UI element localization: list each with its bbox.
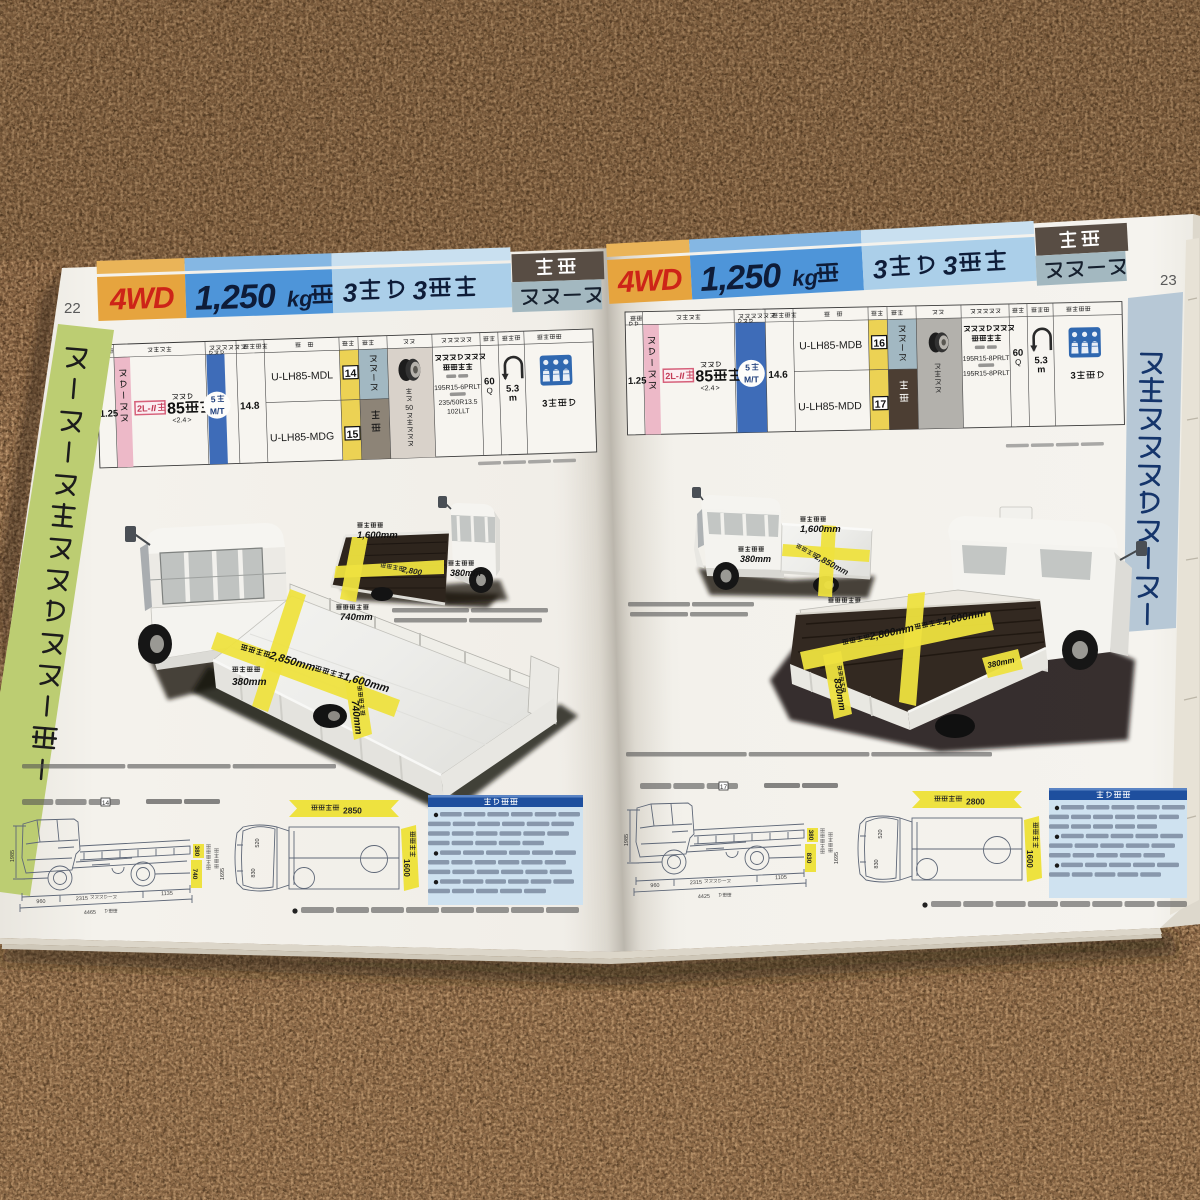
- svg-text:1.25: 1.25: [100, 408, 120, 420]
- svg-text:m: m: [509, 392, 517, 402]
- svg-text:3: 3: [872, 254, 889, 285]
- svg-text:II: II: [151, 403, 157, 413]
- svg-text:1600: 1600: [402, 859, 411, 877]
- svg-text:15: 15: [346, 429, 358, 441]
- svg-text:17: 17: [875, 399, 887, 411]
- svg-text:1985: 1985: [10, 850, 16, 862]
- svg-text:380: 380: [193, 846, 200, 857]
- svg-text:85: 85: [167, 400, 185, 418]
- svg-text:2L-: 2L-: [665, 371, 679, 381]
- svg-text:M/T: M/T: [744, 374, 760, 384]
- svg-text:1600: 1600: [1025, 850, 1034, 868]
- svg-text:1695: 1695: [220, 868, 226, 880]
- svg-text:235/50R13.5: 235/50R13.5: [438, 399, 477, 407]
- svg-text:>: >: [187, 417, 191, 424]
- svg-text:195R15-8PRLT: 195R15-8PRLT: [963, 370, 1010, 378]
- svg-text:14: 14: [345, 368, 357, 380]
- svg-text:1985: 1985: [624, 834, 630, 846]
- svg-text:Q: Q: [1015, 358, 1021, 367]
- svg-text:520: 520: [878, 829, 884, 838]
- svg-text:5: 5: [211, 394, 216, 404]
- svg-text:>: >: [716, 385, 720, 392]
- svg-text:Q: Q: [486, 386, 493, 395]
- svg-text:14.8: 14.8: [240, 401, 260, 413]
- svg-text:1105: 1105: [775, 875, 787, 881]
- svg-text:16: 16: [873, 338, 885, 350]
- svg-text:740: 740: [191, 869, 198, 880]
- svg-text:2315: 2315: [76, 896, 88, 902]
- svg-text:4465: 4465: [84, 910, 96, 916]
- svg-text:2850: 2850: [343, 806, 362, 816]
- svg-text:1135: 1135: [161, 891, 173, 897]
- svg-text:m: m: [1037, 364, 1045, 374]
- svg-text:2L-: 2L-: [137, 403, 151, 413]
- svg-text:<2.4: <2.4: [701, 385, 715, 392]
- svg-text:1695: 1695: [834, 852, 840, 864]
- svg-text:3: 3: [942, 250, 959, 281]
- svg-text:kg: kg: [286, 286, 313, 312]
- svg-text:5: 5: [745, 362, 750, 372]
- svg-text:3: 3: [542, 398, 548, 409]
- svg-text:1,250: 1,250: [699, 257, 782, 299]
- svg-text:<2.4: <2.4: [172, 417, 186, 424]
- svg-text:II: II: [679, 371, 685, 381]
- svg-text:380mm: 380mm: [740, 554, 771, 564]
- svg-text:380mm: 380mm: [232, 677, 267, 688]
- svg-text:U-LH85-MDL: U-LH85-MDL: [271, 369, 333, 383]
- svg-text:1,600mm: 1,600mm: [800, 524, 841, 535]
- svg-text:23: 23: [1160, 272, 1177, 289]
- svg-text:U-LH85-MDD: U-LH85-MDD: [798, 400, 862, 413]
- svg-text:1.25: 1.25: [628, 376, 647, 387]
- svg-text:22: 22: [64, 300, 81, 317]
- svg-text:520: 520: [255, 838, 261, 847]
- svg-text:960: 960: [36, 899, 45, 905]
- svg-text:830: 830: [805, 853, 812, 864]
- svg-text:2800: 2800: [966, 797, 985, 807]
- svg-text:4425: 4425: [698, 894, 710, 900]
- svg-text:380mm: 380mm: [450, 568, 481, 578]
- svg-text:4WD: 4WD: [108, 281, 174, 316]
- svg-text:3: 3: [1070, 371, 1076, 382]
- svg-text:830: 830: [874, 859, 880, 868]
- svg-text:3: 3: [412, 275, 428, 305]
- svg-text:380: 380: [807, 830, 814, 841]
- svg-text:14: 14: [102, 800, 110, 807]
- svg-text:960: 960: [650, 883, 659, 889]
- svg-text:4WD: 4WD: [616, 263, 683, 299]
- svg-text:17: 17: [720, 784, 728, 791]
- svg-text:1,250: 1,250: [194, 277, 276, 318]
- svg-text:M/T: M/T: [210, 406, 226, 416]
- svg-text:U-LH85-MDG: U-LH85-MDG: [270, 430, 335, 444]
- svg-text:2315: 2315: [690, 880, 702, 886]
- svg-text:830: 830: [251, 868, 257, 877]
- svg-text:kg: kg: [792, 265, 820, 291]
- svg-text:102LLT: 102LLT: [447, 408, 470, 416]
- svg-text:195R15-8PRLT: 195R15-8PRLT: [963, 355, 1010, 363]
- svg-text:14.6: 14.6: [768, 370, 788, 381]
- svg-text:1,600mm: 1,600mm: [357, 530, 398, 541]
- svg-text:740mm: 740mm: [340, 612, 373, 623]
- svg-text:U-LH85-MDB: U-LH85-MDB: [799, 339, 862, 352]
- svg-text:50: 50: [405, 405, 413, 412]
- svg-text:3: 3: [342, 277, 358, 307]
- svg-text:85: 85: [695, 368, 713, 385]
